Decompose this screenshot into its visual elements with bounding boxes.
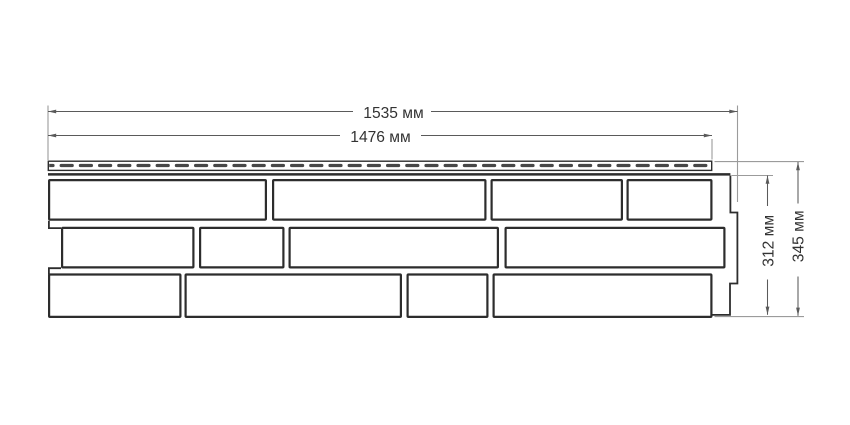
svg-text:1535 мм: 1535 мм [363, 105, 423, 122]
svg-text:1476 мм: 1476 мм [350, 129, 410, 146]
svg-text:312 мм: 312 мм [761, 215, 778, 267]
svg-text:345 мм: 345 мм [791, 210, 808, 262]
